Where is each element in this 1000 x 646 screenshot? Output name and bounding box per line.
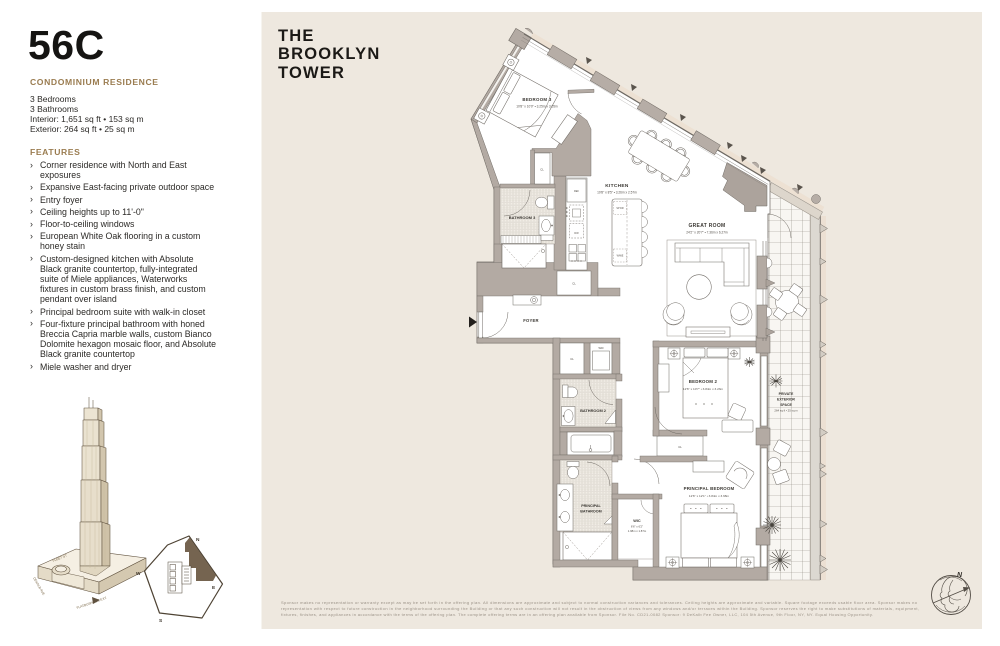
svg-text:W/D: W/D [598, 346, 603, 350]
svg-text:CL: CL [678, 445, 682, 449]
svg-text:6'6" x 6'2": 6'6" x 6'2" [631, 525, 643, 529]
svg-text:PRINCIPAL: PRINCIPAL [581, 504, 601, 508]
svg-text:representation with respect to: representation with respect to future co… [281, 606, 919, 611]
svg-text:DW: DW [574, 232, 579, 235]
svg-text:12'6" x 12'1" • 3.84m x 3.68m: 12'6" x 12'1" • 3.84m x 3.68m [689, 494, 730, 498]
svg-text:fixtures, finishes, and applia: fixtures, finishes, and appliances in ac… [281, 612, 873, 617]
svg-text:PRIVATE: PRIVATE [779, 392, 794, 396]
svg-text:SP DR: SP DR [616, 207, 624, 210]
svg-text:E: E [212, 585, 216, 591]
svg-text:S: S [159, 618, 163, 624]
svg-text:BATHROOM 3: BATHROOM 3 [509, 215, 536, 220]
svg-text:GREAT ROOM: GREAT ROOM [688, 223, 725, 229]
svg-text:CL: CL [572, 282, 576, 286]
svg-text:CL: CL [540, 168, 544, 172]
svg-text:Sponsor makes no representatio: Sponsor makes no representation or warra… [281, 600, 918, 605]
svg-text:W/WE: W/WE [617, 255, 624, 258]
svg-text:BEDROOM 3: BEDROOM 3 [522, 97, 552, 102]
svg-text:264 sq ft • 25 sq m: 264 sq ft • 25 sq m [774, 409, 798, 413]
svg-text:1.98m x 1.87m: 1.98m x 1.87m [628, 529, 647, 533]
svg-text:BATHROOM: BATHROOM [580, 510, 601, 514]
svg-text:10'8" x 10'0" • 3.25m x 3.05m: 10'8" x 10'0" • 3.25m x 3.05m [516, 105, 558, 109]
svg-text:WIC: WIC [633, 519, 641, 523]
svg-text:CL: CL [570, 357, 574, 361]
svg-text:FLATBUSH AVE EXT.: FLATBUSH AVE EXT. [76, 596, 108, 610]
svg-text:BEDROOM 2: BEDROOM 2 [689, 379, 718, 384]
svg-text:BATHROOM 2: BATHROOM 2 [580, 408, 607, 413]
svg-text:24'2" x 20'7" • 7.36m x 6.27m: 24'2" x 20'7" • 7.36m x 6.27m [686, 231, 728, 235]
svg-text:FOYER: FOYER [523, 318, 538, 323]
svg-text:12'6" x 10'7" • 3.84m x 3.23m: 12'6" x 10'7" • 3.84m x 3.23m [683, 387, 724, 391]
svg-text:10'8" x 8'5" • 3.26m x 2.57m: 10'8" x 8'5" • 3.26m x 2.57m [597, 191, 637, 195]
svg-text:EXTERIOR: EXTERIOR [777, 398, 795, 402]
svg-text:N: N [196, 537, 200, 543]
svg-text:REF: REF [574, 190, 579, 193]
svg-text:SPACE: SPACE [780, 403, 792, 407]
svg-text:PRINCIPAL BEDROOM: PRINCIPAL BEDROOM [684, 486, 735, 491]
svg-text:KITCHEN: KITCHEN [605, 183, 629, 189]
svg-text:W: W [136, 571, 141, 577]
